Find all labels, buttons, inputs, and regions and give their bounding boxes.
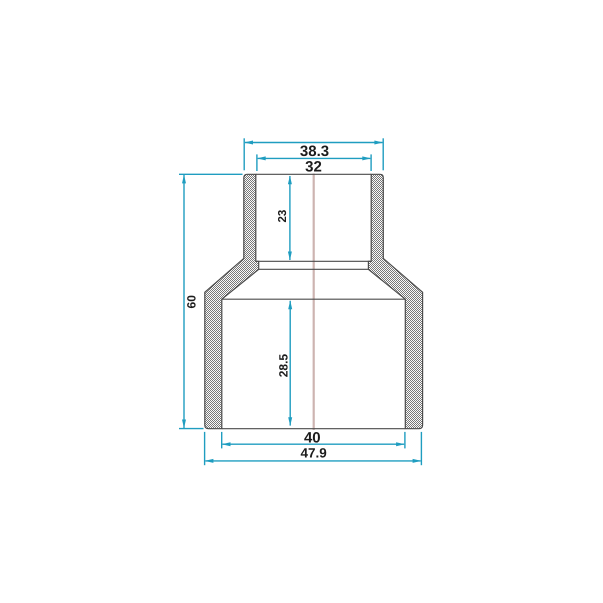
svg-text:23: 23 [277, 210, 289, 223]
svg-text:32: 32 [305, 158, 322, 175]
svg-text:47.9: 47.9 [300, 446, 326, 461]
svg-text:40: 40 [304, 429, 321, 446]
svg-text:28.5: 28.5 [277, 354, 291, 378]
svg-text:60: 60 [185, 295, 199, 309]
svg-text:38.3: 38.3 [300, 143, 329, 160]
